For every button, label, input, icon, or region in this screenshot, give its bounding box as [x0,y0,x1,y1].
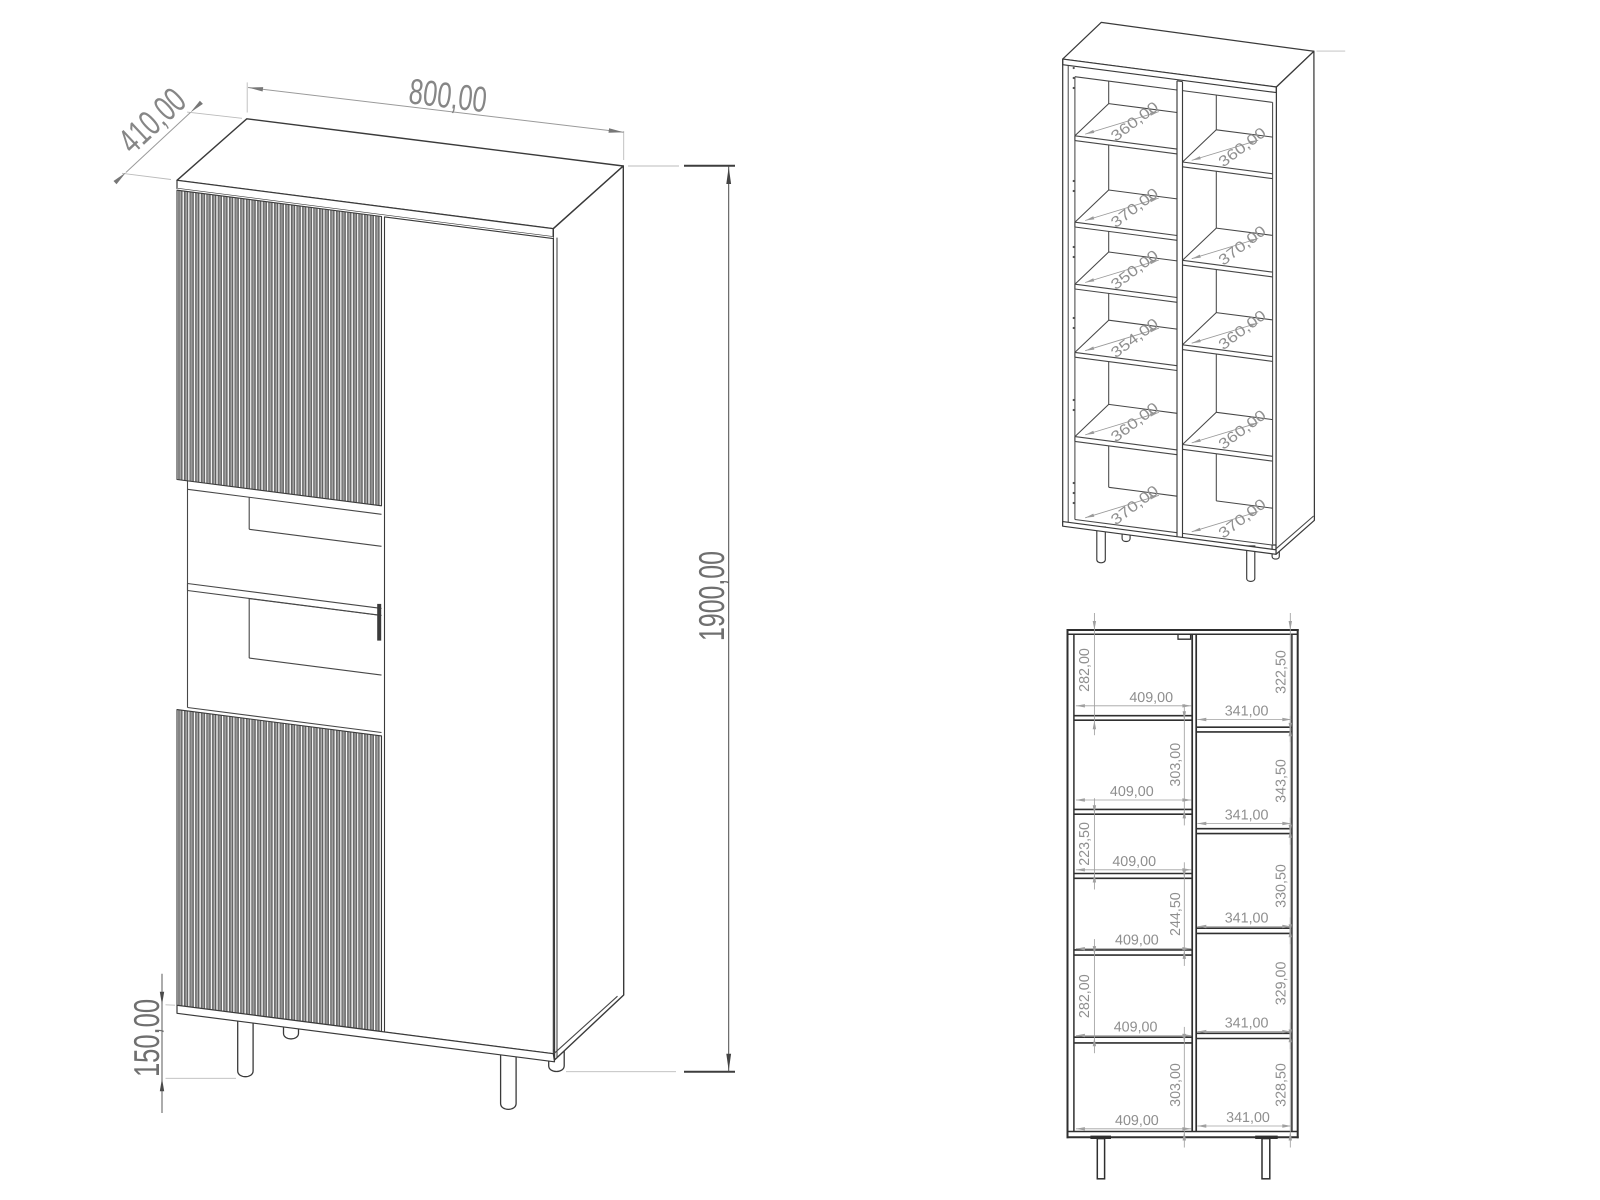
svg-text:409,00: 409,00 [1114,1020,1158,1036]
svg-text:341,00: 341,00 [1225,1016,1269,1032]
svg-text:282,00: 282,00 [1077,974,1093,1018]
svg-text:409,00: 409,00 [1112,854,1156,870]
svg-text:322,50: 322,50 [1273,650,1289,694]
svg-text:341,00: 341,00 [1225,911,1269,927]
svg-text:341,00: 341,00 [1225,808,1269,824]
svg-text:303,00: 303,00 [1168,1063,1184,1107]
svg-text:329,00: 329,00 [1273,961,1289,1005]
svg-text:1900,00: 1900,00 [691,551,732,641]
svg-text:330,50: 330,50 [1273,864,1289,908]
svg-text:150,00: 150,00 [126,999,167,1077]
svg-text:409,00: 409,00 [1129,690,1173,706]
svg-text:282,00: 282,00 [1077,648,1093,692]
svg-text:244,50: 244,50 [1168,892,1184,936]
svg-text:341,00: 341,00 [1225,704,1269,720]
svg-text:303,00: 303,00 [1168,743,1184,787]
svg-text:409,00: 409,00 [1115,933,1159,949]
svg-text:343,50: 343,50 [1273,759,1289,803]
svg-text:328,50: 328,50 [1273,1063,1289,1107]
svg-text:341,00: 341,00 [1226,1110,1270,1126]
svg-text:409,00: 409,00 [1110,784,1154,800]
svg-text:223,50: 223,50 [1077,822,1093,866]
svg-text:409,00: 409,00 [1115,1113,1159,1129]
